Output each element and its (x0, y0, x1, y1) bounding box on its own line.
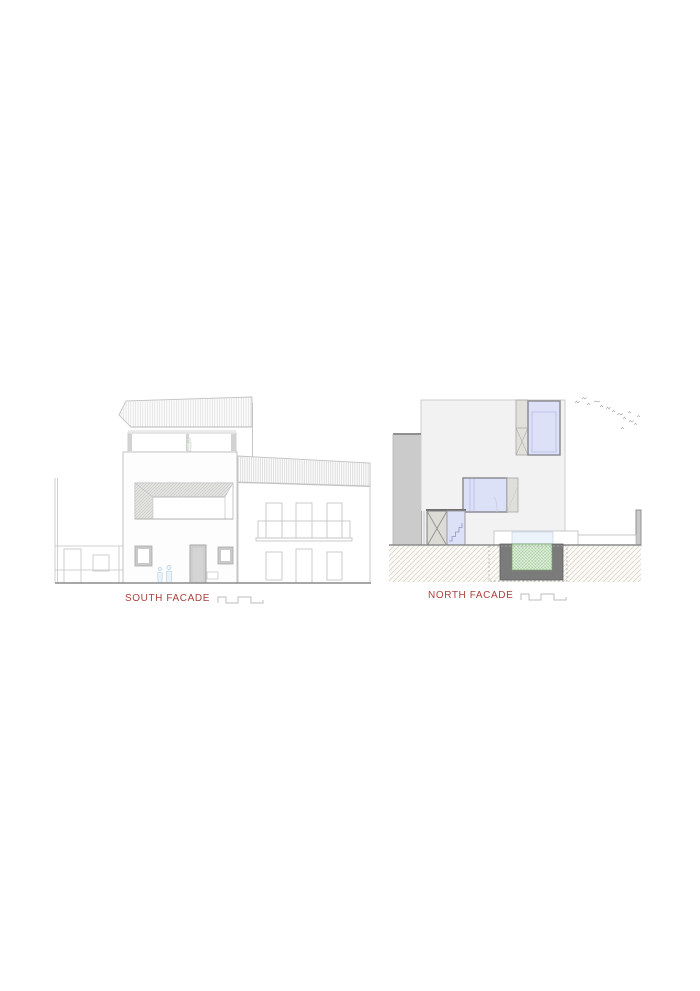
scale-bar-icon (520, 589, 572, 602)
north-facade-label: NORTH FACADE (428, 590, 513, 601)
south-facade-label: SOUTH FACADE (125, 593, 210, 604)
south-facade-drawing (48, 390, 378, 595)
ground-window-left (135, 546, 152, 566)
scale-bar-icon (217, 592, 269, 605)
south-caption: SOUTH FACADE (125, 592, 269, 605)
door-side-box (207, 572, 218, 579)
boundary-post-right (636, 510, 641, 546)
north-facade-drawing (385, 385, 650, 600)
entry-door (190, 545, 206, 583)
window-top-right (516, 400, 560, 455)
pool-water-above-grade (512, 532, 553, 545)
window-middle (463, 478, 518, 512)
neighbor-wall-left (393, 434, 421, 545)
person-figure-roof (187, 438, 191, 452)
neighbor-house (238, 456, 370, 583)
clerestory-window (128, 431, 236, 452)
site-wall-left (55, 478, 123, 583)
north-caption: NORTH FACADE (428, 589, 572, 602)
terrace-recess (135, 483, 233, 519)
ground-window-right (218, 547, 233, 564)
pool-water-fill (512, 544, 552, 570)
vegetation-marks (575, 398, 640, 430)
